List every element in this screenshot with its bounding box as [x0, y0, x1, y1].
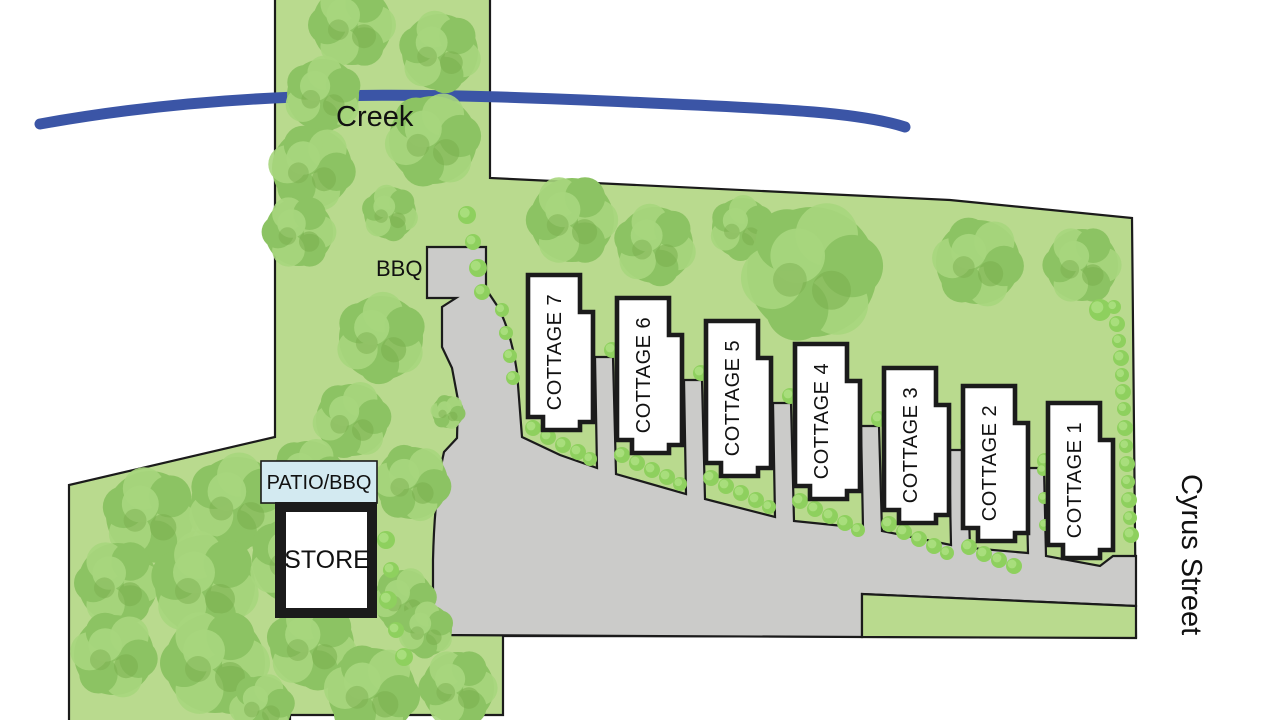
- bush: [503, 349, 517, 363]
- bush: [926, 538, 942, 554]
- bush: [525, 420, 541, 436]
- bush: [629, 455, 645, 471]
- bush: [474, 284, 490, 300]
- bush: [1006, 558, 1022, 574]
- bush: [383, 562, 399, 578]
- bush: [748, 492, 764, 508]
- bush: [388, 622, 404, 638]
- bush: [395, 648, 413, 666]
- bush: [469, 259, 487, 277]
- bush: [506, 371, 520, 385]
- bush: [961, 539, 977, 555]
- bush: [1121, 492, 1137, 508]
- bush: [499, 326, 513, 340]
- cottage-label: COTTAGE 2: [979, 405, 1001, 521]
- cottage-label: COTTAGE 5: [722, 340, 744, 456]
- store-label: STORE: [284, 546, 370, 574]
- bush: [881, 516, 897, 532]
- bush: [718, 478, 734, 494]
- bush: [976, 546, 992, 562]
- bush: [377, 531, 395, 549]
- creek-label: Creek: [336, 101, 414, 133]
- bush: [792, 493, 808, 509]
- bush: [465, 234, 481, 250]
- bush: [851, 523, 865, 537]
- site-plan-page: COTTAGE 7COTTAGE 6COTTAGE 5COTTAGE 4COTT…: [0, 0, 1280, 720]
- bush: [1107, 300, 1121, 314]
- bush: [1123, 511, 1137, 525]
- bush: [1119, 456, 1135, 472]
- cottage-label: COTTAGE 3: [900, 387, 922, 503]
- bush: [379, 591, 397, 609]
- bush: [659, 469, 675, 485]
- bush: [807, 501, 823, 517]
- bush: [1117, 402, 1131, 416]
- bush: [644, 462, 660, 478]
- bush: [1117, 420, 1133, 436]
- bush: [1123, 527, 1139, 543]
- bush: [614, 447, 630, 463]
- site-plan-map: COTTAGE 7COTTAGE 6COTTAGE 5COTTAGE 4COTT…: [0, 0, 1280, 720]
- bush: [1115, 368, 1129, 382]
- cottage-label: COTTAGE 4: [811, 363, 833, 479]
- bush: [583, 452, 597, 466]
- bush: [896, 524, 912, 540]
- cottage-label: COTTAGE 1: [1064, 422, 1086, 538]
- bush: [703, 470, 719, 486]
- bush: [940, 546, 954, 560]
- bush: [837, 515, 853, 531]
- bush: [762, 500, 776, 514]
- bush: [1109, 316, 1125, 332]
- bush: [458, 206, 476, 224]
- cottage-label: COTTAGE 6: [633, 317, 655, 433]
- bush: [1119, 439, 1133, 453]
- bbq-label: BBQ: [376, 256, 422, 281]
- street-label: Cyrus Street: [1175, 474, 1207, 635]
- bush: [991, 552, 1007, 568]
- bush: [1113, 350, 1129, 366]
- bush: [555, 437, 571, 453]
- bush: [911, 531, 927, 547]
- patio-bbq-label: PATIO/BBQ: [267, 472, 372, 494]
- cottage-label: COTTAGE 7: [544, 294, 566, 410]
- bush: [733, 485, 749, 501]
- bush: [495, 303, 509, 317]
- bush: [822, 508, 838, 524]
- bush: [1112, 334, 1126, 348]
- bush: [1121, 475, 1135, 489]
- bush: [1115, 384, 1131, 400]
- bush: [673, 477, 687, 491]
